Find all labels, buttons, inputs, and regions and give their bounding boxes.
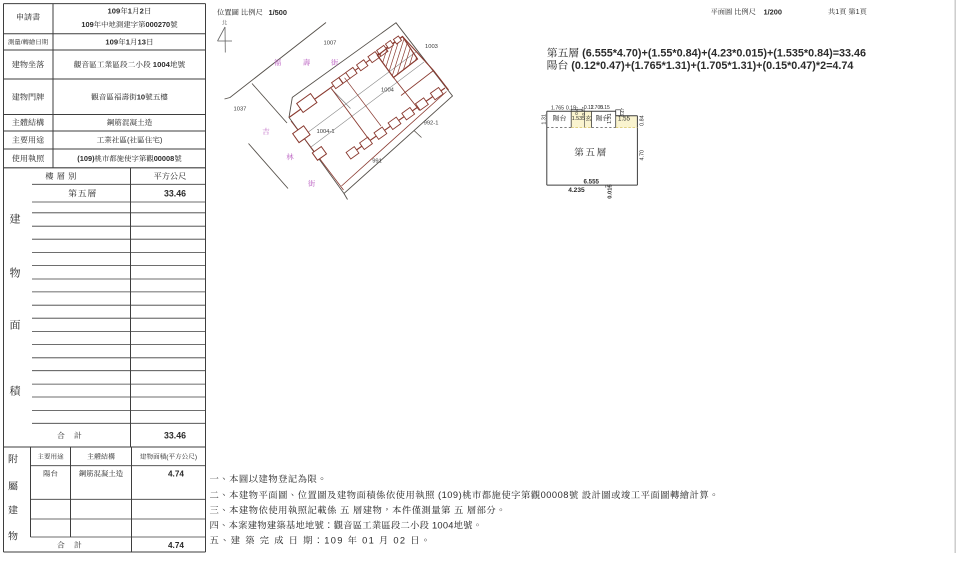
svg-text:1/200: 1/200 (764, 7, 783, 16)
svg-text:4.74: 4.74 (168, 541, 184, 550)
svg-text:2: 2 (140, 7, 144, 16)
svg-text:(6.555*4.70)+(1.55*0.84)+(4.23: (6.555*4.70)+(1.55*0.84)+(4.23*0.015)+(1… (582, 48, 866, 60)
svg-text:1003: 1003 (425, 44, 438, 50)
svg-text:13: 13 (138, 38, 146, 47)
svg-text:1004: 1004 (432, 520, 454, 530)
svg-text:1: 1 (835, 7, 839, 16)
svg-text:1004-1: 1004-1 (317, 129, 335, 135)
svg-text:6.555: 6.555 (584, 179, 600, 186)
svg-text:0.47: 0.47 (581, 106, 586, 115)
svg-text:1: 1 (126, 38, 131, 47)
svg-text:01: 01 (362, 536, 375, 546)
svg-text:4.235: 4.235 (568, 187, 585, 194)
svg-text:33.46: 33.46 (164, 189, 186, 199)
svg-text:(109): (109) (438, 490, 462, 500)
svg-text:1037: 1037 (234, 107, 247, 113)
svg-text:(: ( (127, 136, 130, 145)
svg-text:0.015: 0.015 (607, 184, 613, 199)
svg-text:1007: 1007 (324, 41, 337, 47)
svg-text:02: 02 (393, 536, 406, 546)
svg-text:000270: 000270 (146, 20, 171, 29)
svg-text:1.765: 1.765 (551, 105, 564, 111)
svg-text:): ) (195, 454, 197, 461)
svg-text:109: 109 (108, 7, 121, 16)
svg-text:1004: 1004 (153, 60, 171, 69)
svg-text:): ) (160, 136, 163, 145)
svg-text:4.70: 4.70 (639, 150, 645, 161)
svg-text:0.47: 0.47 (620, 107, 625, 116)
svg-text:1004: 1004 (381, 88, 395, 94)
svg-text:(0.12*0.47)+(1.765*1.31)+(1.70: (0.12*0.47)+(1.765*1.31)+(1.705*1.31)+(0… (571, 60, 853, 72)
svg-text:992-1: 992-1 (424, 121, 439, 127)
svg-text:4.74: 4.74 (168, 469, 184, 478)
svg-text:(109): (109) (77, 154, 95, 163)
svg-text:10: 10 (137, 93, 145, 102)
svg-text:1.535: 1.535 (572, 116, 586, 122)
svg-text:109: 109 (324, 536, 343, 546)
svg-text:1.31: 1.31 (607, 113, 613, 124)
svg-text:00008: 00008 (154, 154, 175, 163)
svg-text:109: 109 (105, 38, 118, 47)
svg-text:1: 1 (128, 7, 133, 16)
svg-text:33.46: 33.46 (164, 431, 186, 441)
svg-text:1: 1 (856, 7, 860, 16)
svg-text:1/500: 1/500 (269, 8, 288, 17)
svg-text:00008: 00008 (541, 490, 569, 500)
svg-text:0.84: 0.84 (639, 115, 645, 126)
svg-text:109: 109 (81, 20, 93, 29)
svg-text:(: ( (166, 454, 169, 461)
svg-text:0.15: 0.15 (600, 105, 610, 111)
svg-text:/: / (21, 39, 23, 46)
svg-text:1.31: 1.31 (541, 114, 547, 125)
svg-text:991: 991 (372, 159, 382, 165)
svg-text:0.47: 0.47 (574, 105, 579, 114)
